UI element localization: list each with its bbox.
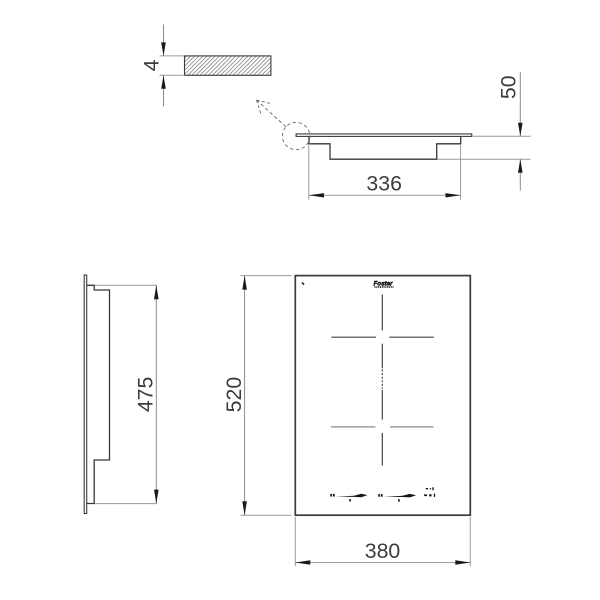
svg-text:4: 4 [139,59,163,71]
svg-text:380: 380 [365,539,401,563]
svg-text:50: 50 [497,75,521,99]
svg-text:475: 475 [133,377,157,413]
svg-text:336: 336 [366,172,402,196]
svg-text:520: 520 [222,377,246,413]
